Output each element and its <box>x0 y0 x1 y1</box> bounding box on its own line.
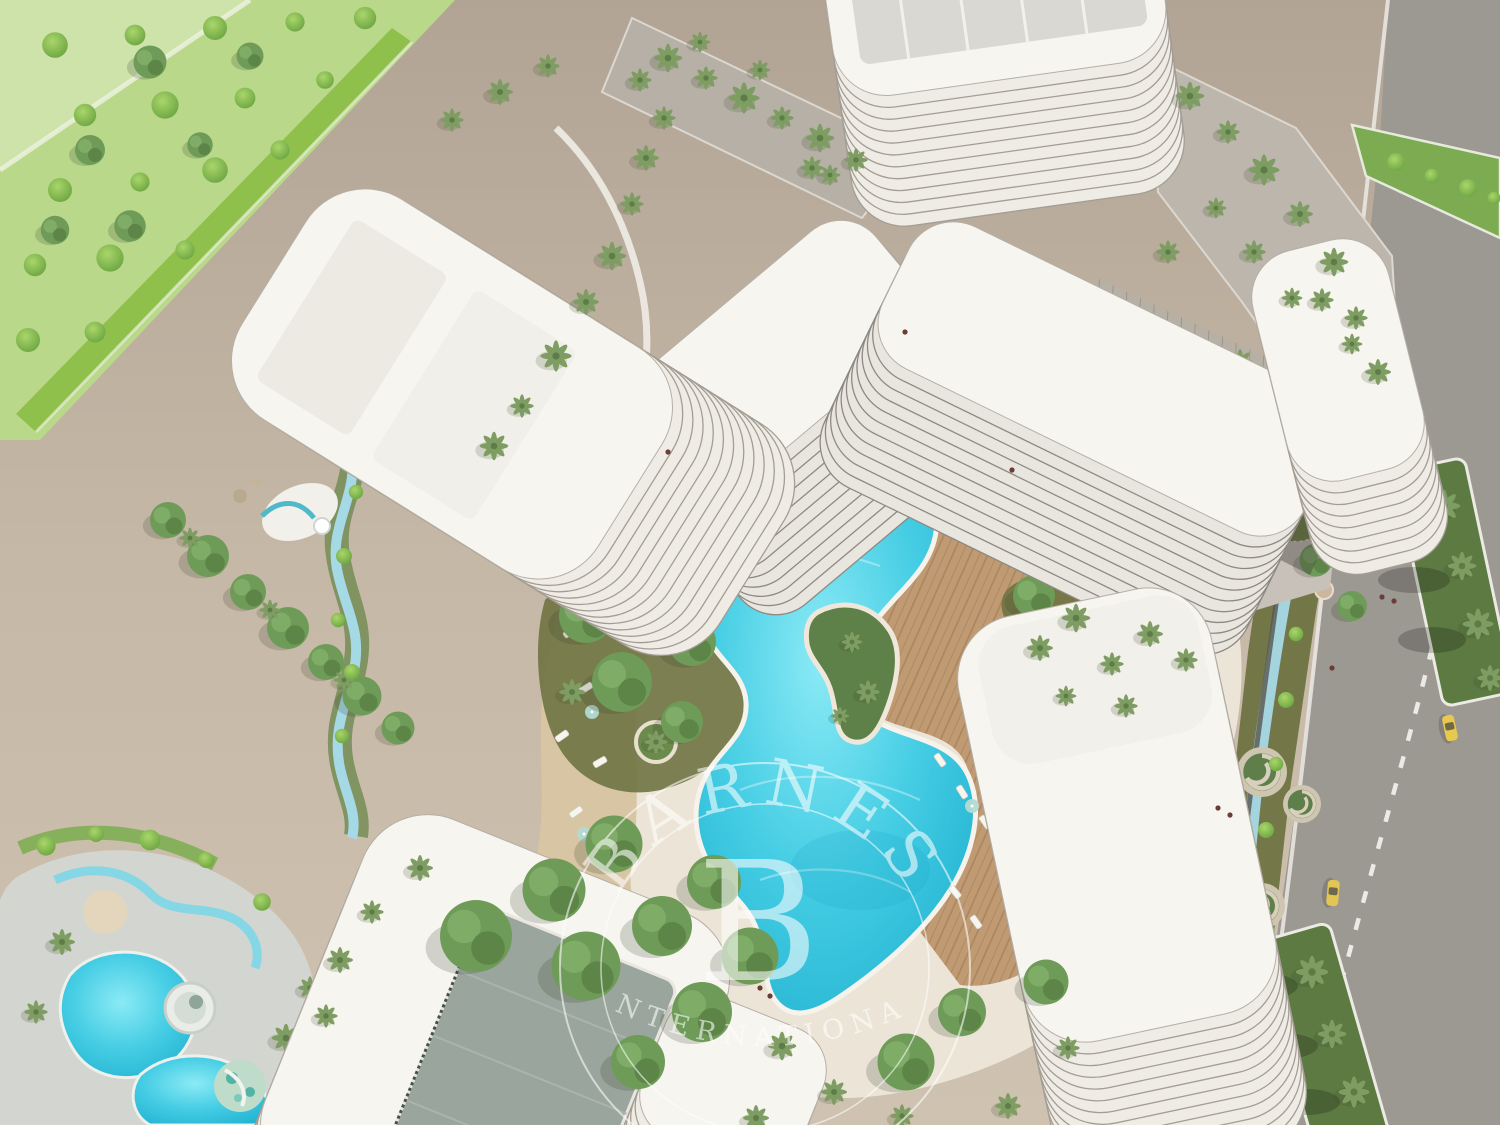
aerial-render-image: BARNES B INTERNATIONAL <box>0 0 1500 1125</box>
playground <box>214 1060 266 1112</box>
play-dome <box>165 983 215 1033</box>
watermark-initial: B <box>697 827 819 1020</box>
aerial-render-svg: BARNES B INTERNATIONAL <box>0 0 1500 1125</box>
